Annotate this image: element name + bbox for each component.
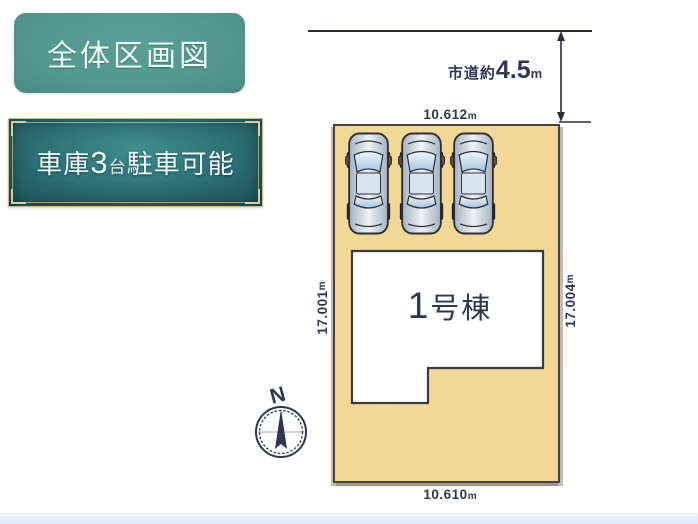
building-number: 1 [408, 285, 431, 326]
overview-title-label: 全体区画図 [47, 31, 212, 75]
dimension-bottom: 10.610m [405, 486, 495, 504]
overview-title-badge: 全体区画図 [14, 13, 245, 93]
building-footprint [350, 249, 546, 406]
building-number-suffix: 号棟 [430, 293, 492, 325]
arrow-down-icon [557, 112, 565, 122]
dimension-bottom-value: 10.610 [423, 487, 467, 502]
car-icon [345, 132, 392, 235]
site-plan-page: 全体区画図 車庫3台駐車可能 1号棟 市道約4.5m 10.612m [0, 0, 698, 524]
plaque-corner-ornament [11, 121, 26, 136]
car-icon [450, 132, 497, 235]
garage-label-suffix: 駐車可能 [127, 149, 235, 179]
dimension-left: 17.001m [314, 258, 330, 358]
road-width-label: 市道約4.5m [425, 56, 565, 85]
building-label: 1号棟 [380, 285, 520, 327]
garage-count-unit: 台 [109, 158, 127, 177]
dimension-left-value: 17.001 [315, 290, 330, 334]
dimension-top: 10.612m [405, 106, 495, 124]
garage-car-count: 3 [90, 145, 108, 180]
dimension-right-value: 17.004 [563, 283, 578, 327]
page-bottom-strip [0, 513, 698, 524]
dimension-left-unit: m [317, 281, 328, 290]
dimension-right-unit: m [565, 274, 576, 283]
compass-needle [275, 409, 287, 449]
garage-capacity-label: 車庫3台駐車可能 [36, 144, 234, 181]
car-icon [398, 132, 445, 235]
plaque-corner-ornament [245, 189, 260, 204]
plaque-corner-ornament [11, 189, 26, 204]
plaque-corner-ornament [245, 121, 260, 136]
road-label-prefix: 市道約 [448, 65, 496, 82]
dimension-right: 17.004m [562, 251, 578, 351]
dimension-bottom-unit: m [468, 491, 477, 502]
dimension-top-value: 10.612 [423, 107, 467, 122]
dimension-top-unit: m [468, 111, 477, 122]
compass-icon: N [250, 383, 312, 463]
arrow-up-icon [557, 31, 565, 41]
road-width-value: 4.5 [496, 56, 531, 84]
garage-label-prefix: 車庫 [36, 149, 90, 179]
garage-capacity-badge: 車庫3台駐車可能 [8, 118, 263, 207]
road-width-unit: m [531, 66, 543, 81]
compass-north-label: N [267, 383, 288, 409]
